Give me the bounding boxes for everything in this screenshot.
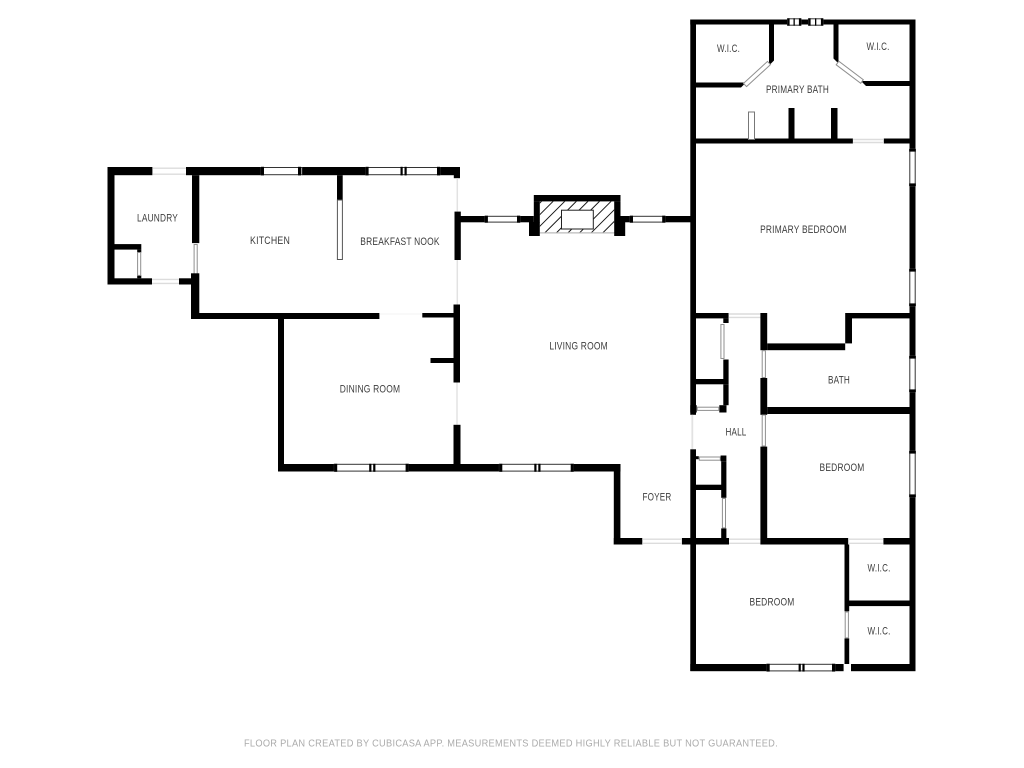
svg-text:W.I.C.: W.I.C. xyxy=(868,563,891,575)
svg-text:DINING ROOM: DINING ROOM xyxy=(340,383,401,395)
svg-text:BATH: BATH xyxy=(828,375,850,387)
svg-text:PRIMARY BEDROOM: PRIMARY BEDROOM xyxy=(760,224,847,236)
svg-text:PRIMARY BATH: PRIMARY BATH xyxy=(766,84,829,96)
svg-text:W.I.C.: W.I.C. xyxy=(867,41,890,53)
svg-text:FLOOR PLAN CREATED BY CUBICASA: FLOOR PLAN CREATED BY CUBICASA APP. MEAS… xyxy=(244,739,778,750)
svg-text:KITCHEN: KITCHEN xyxy=(250,235,290,247)
svg-text:FOYER: FOYER xyxy=(643,492,672,504)
svg-text:W.I.C.: W.I.C. xyxy=(717,43,740,55)
svg-text:LIVING ROOM: LIVING ROOM xyxy=(549,340,608,352)
svg-text:W.I.C.: W.I.C. xyxy=(868,626,891,638)
svg-text:BEDROOM: BEDROOM xyxy=(820,462,865,474)
svg-text:BREAKFAST NOOK: BREAKFAST NOOK xyxy=(360,236,440,248)
svg-text:LAUNDRY: LAUNDRY xyxy=(137,213,178,225)
svg-text:HALL: HALL xyxy=(726,427,747,439)
svg-text:BEDROOM: BEDROOM xyxy=(750,597,795,609)
